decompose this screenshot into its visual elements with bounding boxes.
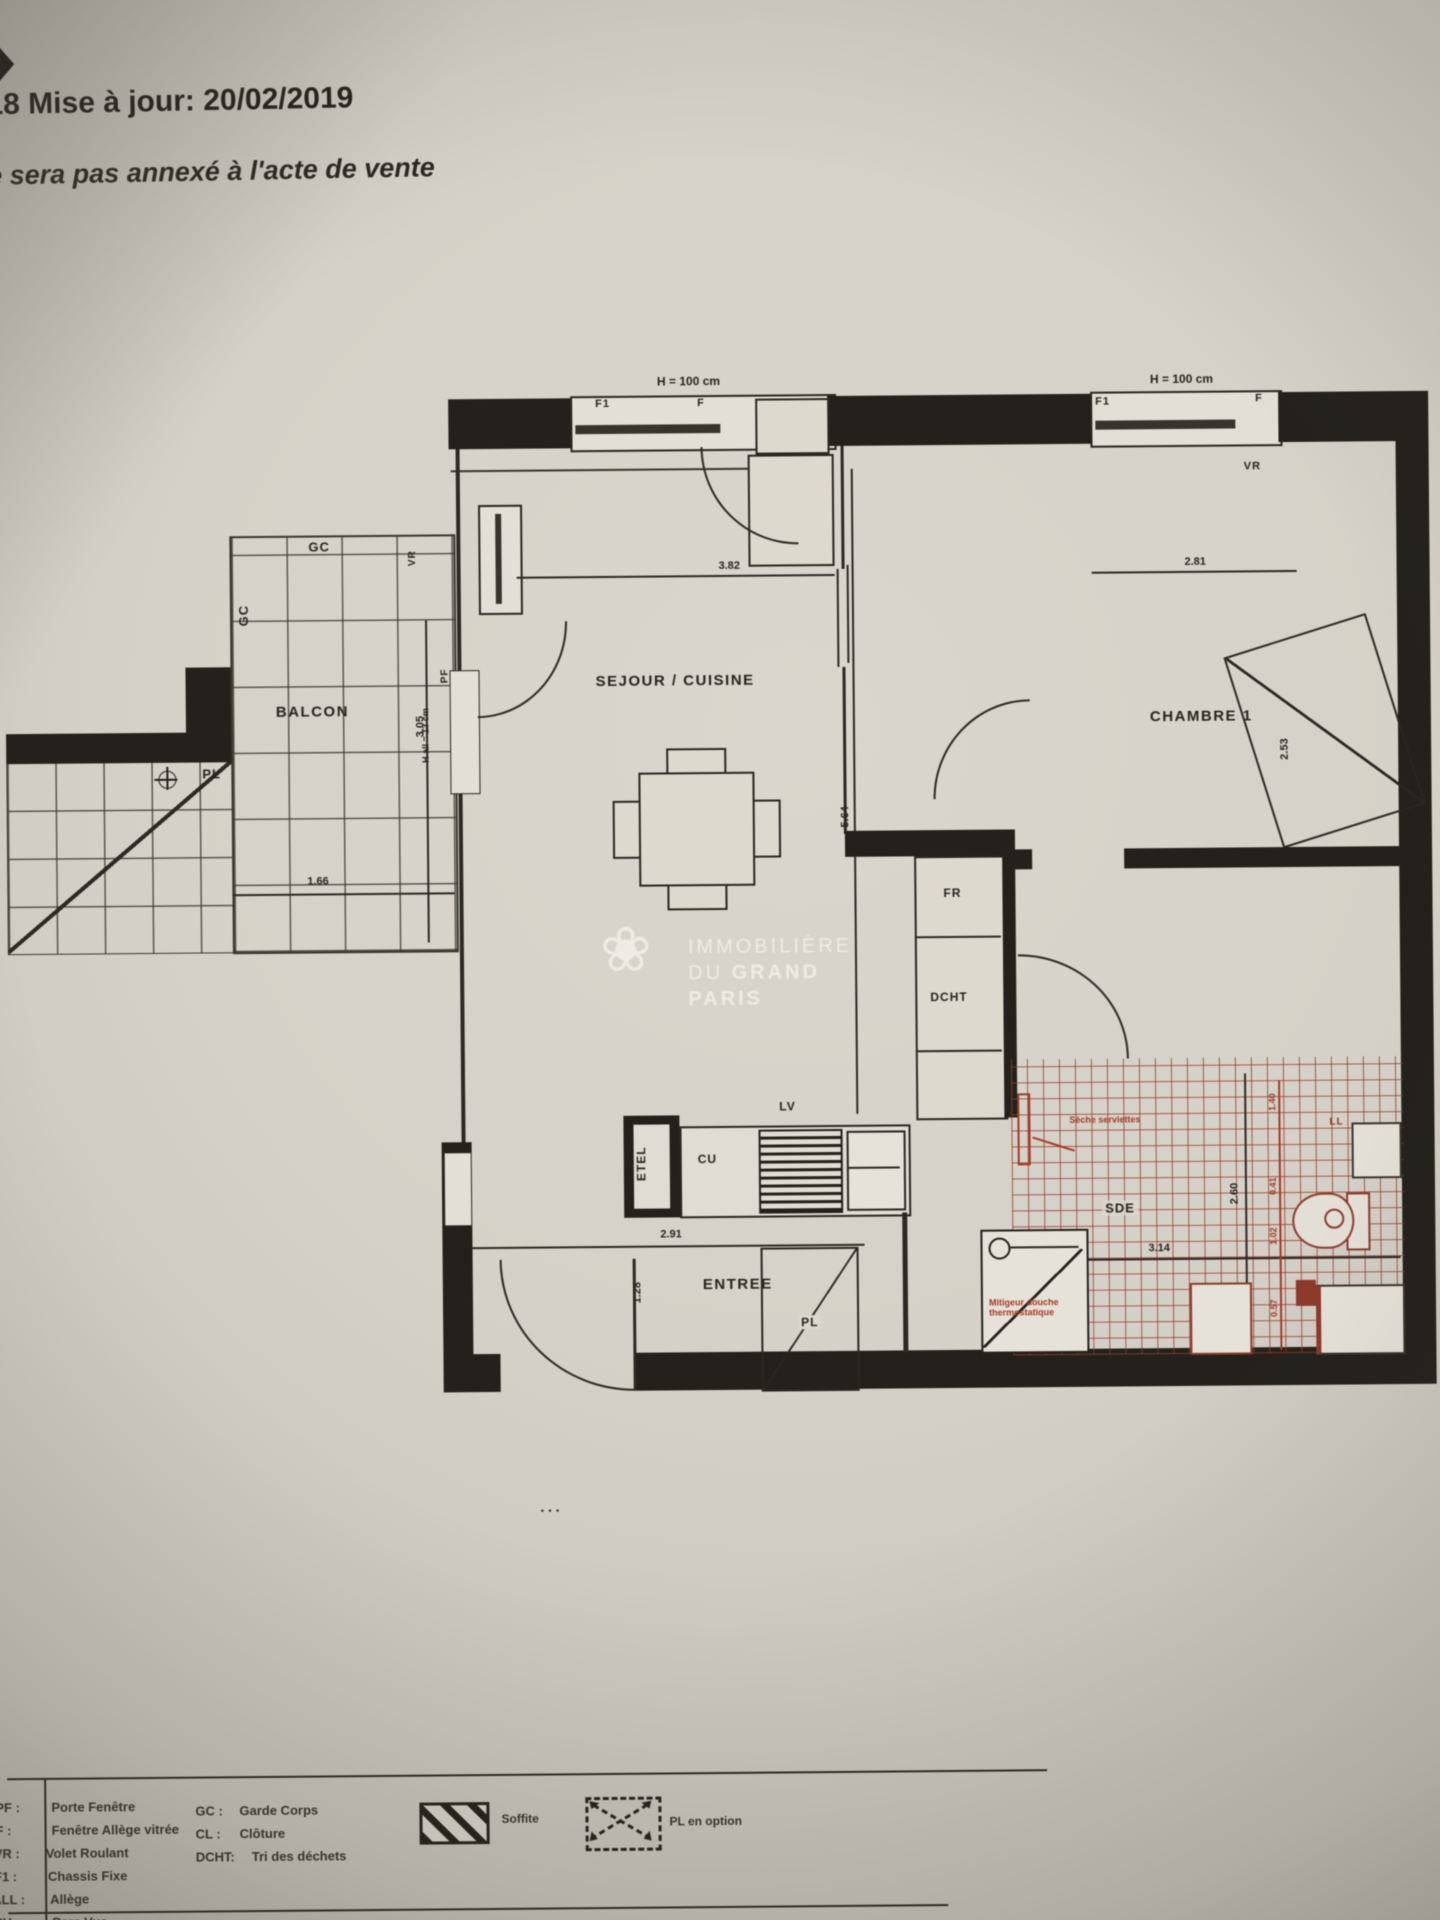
height-note-left: H = 100 cm	[657, 374, 720, 389]
legend-abbr: CL :	[196, 1826, 221, 1841]
chair	[666, 748, 726, 775]
hall-door-swing	[701, 446, 799, 545]
sliding-door-rail	[837, 569, 840, 667]
pf-door-panel	[449, 670, 480, 794]
legend-label: Tri des déchets	[252, 1848, 347, 1864]
sliding-door-rail	[847, 565, 850, 663]
header-note-line: e sera pas annexé à l'acte de vente	[0, 152, 435, 192]
lv-label: LV	[779, 1099, 796, 1113]
plan-dots: • • •	[541, 1505, 561, 1515]
red-dim-2: 0.41	[1268, 1177, 1278, 1195]
vanity-unit	[1190, 1282, 1253, 1355]
balcony-gc-label: GC	[308, 539, 330, 554]
legend-abbr: GC :	[195, 1803, 223, 1818]
page-corner-mark	[0, 34, 14, 94]
wall	[1278, 391, 1428, 442]
dim-chambre-depth: 2.53	[1279, 738, 1291, 760]
window-glazing	[1095, 419, 1235, 429]
chair	[613, 801, 642, 859]
legend-label: Volet Roulant	[46, 1845, 129, 1861]
sde-room-label: SDE	[1102, 1200, 1138, 1215]
cu-label: CU	[698, 1152, 717, 1166]
survey-point-icon	[158, 771, 176, 789]
partition-wall	[842, 667, 846, 834]
chambre-room-label: CHAMBRE 1	[1150, 707, 1253, 725]
wall	[827, 394, 1090, 446]
washing-machine	[1351, 1122, 1401, 1178]
terrace-diagonal	[6, 761, 233, 953]
pf-label: PF	[439, 668, 450, 683]
wall	[1124, 846, 1414, 869]
chambre-door-swing	[933, 699, 1031, 799]
window-glazing	[575, 424, 720, 434]
pf-door-swing	[477, 621, 568, 718]
watermark-line3: PARIS	[688, 988, 763, 1012]
pl-option-arrows-icon	[585, 1797, 655, 1846]
window-f-right-label: F	[1255, 392, 1263, 404]
sde-fixture	[1316, 1284, 1406, 1355]
sde-door-swing	[1018, 953, 1129, 1059]
partition-wall	[902, 1212, 908, 1352]
watermark-grand: GRAND	[731, 961, 820, 984]
dimension-line	[1092, 570, 1297, 573]
red-dim-4: 0.57	[1269, 1299, 1279, 1317]
dim-sde-width: 3.14	[1148, 1242, 1170, 1254]
legend-label: Porte Fenêtre	[51, 1799, 135, 1815]
window-f1-right-label: F1	[1095, 396, 1110, 408]
legend-abbr: DCHT:	[196, 1849, 235, 1864]
legend-abbr: PF :	[0, 1800, 20, 1815]
dim-sde-height: 2.60	[1229, 1183, 1241, 1205]
pl-option-symbol	[585, 1797, 661, 1852]
legend-abbr: F :	[0, 1823, 12, 1838]
height-note-right: H = 100 cm	[1150, 372, 1213, 387]
red-dim-3: 1.02	[1268, 1227, 1278, 1245]
legend-abbr: ALL :	[0, 1892, 25, 1907]
legend-label: Clôture	[240, 1826, 286, 1841]
sejour-room-label: SEJOUR / CUISINE	[595, 672, 754, 690]
balcony-gc-left-label: GC	[236, 605, 251, 627]
terrace-pl-label: PL	[202, 766, 221, 781]
floor-plan-photo: 18 Mise à jour: 20/02/2019 e sera pas an…	[0, 0, 1440, 1920]
entrance-door-leaf	[633, 1259, 637, 1391]
dcht-label: DCHT	[930, 990, 967, 1004]
toilet-bowl	[1292, 1192, 1354, 1249]
legend-label: Fenêtre Allège vitrée	[52, 1822, 180, 1838]
soffite-symbol	[419, 1802, 489, 1845]
dimension-line	[517, 574, 835, 578]
vr-left-label: VR	[407, 550, 418, 566]
vr-chambre-label: VR	[1244, 460, 1261, 472]
watermark-paris: PARIS	[688, 988, 763, 1011]
wall	[6, 732, 231, 764]
ll-label: LL	[1329, 1117, 1343, 1128]
dishwasher	[758, 1129, 843, 1214]
wall-corner-red	[1296, 1280, 1316, 1306]
watermark-line2: DU GRAND	[688, 961, 820, 985]
toilet-flush-button	[1324, 1209, 1344, 1229]
legend-label: Garde Corps	[239, 1803, 318, 1819]
partition-wall	[841, 446, 845, 569]
etel-label: ETEL	[634, 1146, 648, 1181]
chair	[753, 799, 782, 857]
allege-height-note: H all = 13 cm	[420, 708, 430, 763]
legend-top-border	[7, 1769, 1047, 1780]
chair	[667, 884, 727, 911]
legend-label: Pare Vue	[52, 1914, 107, 1920]
fr-label: FR	[943, 886, 961, 900]
header-update-line: 18 Mise à jour: 20/02/2019	[0, 81, 354, 122]
legend-abbr: VR :	[0, 1846, 20, 1861]
dining-table	[638, 772, 755, 887]
legend-abbr: PV :	[0, 1915, 20, 1920]
legend-pl-option-label: PL en option	[669, 1814, 742, 1829]
watermark-line1: IMMOBILIÈRE	[688, 935, 852, 959]
dim-chambre-width: 2.81	[1184, 556, 1206, 568]
watermark-logo-icon: ❀	[600, 913, 653, 986]
legend-label: Allège	[50, 1892, 89, 1907]
dim-balcony-width: 1.66	[307, 875, 329, 887]
window-f-left-label: F	[697, 397, 705, 409]
entrance-door-swing	[500, 1259, 636, 1392]
entree-pl-label: PL	[799, 1315, 820, 1329]
window-entree-west	[444, 1152, 473, 1226]
bed	[1223, 613, 1425, 849]
window-f1-left-label: F1	[595, 398, 610, 410]
dimension-line	[851, 469, 858, 1114]
window-glazing	[495, 514, 502, 604]
dim-sejour-width: 3.82	[719, 560, 741, 572]
legend-bottom-border	[8, 1904, 948, 1914]
red-dim-1: 1.40	[1267, 1093, 1277, 1111]
kitchen-sink	[846, 1130, 906, 1211]
legend-label: Chassis Fixe	[48, 1868, 128, 1884]
towel-radiator-note: Sèche serviettes	[1069, 1114, 1147, 1125]
legend-soffite-label: Soffite	[501, 1812, 538, 1826]
legend-abbr: F1 :	[0, 1869, 17, 1884]
dim-entree-width: 2.91	[660, 1228, 682, 1240]
towel-radiator	[1017, 1093, 1031, 1165]
wall	[845, 829, 1015, 856]
balcony-room-label: BALCON	[276, 703, 349, 721]
wall	[1002, 849, 1032, 869]
wall	[448, 398, 572, 449]
watermark-du: DU	[688, 962, 723, 984]
shower-mixer-note: Mitigeur douche thermostatique	[989, 1297, 1069, 1318]
